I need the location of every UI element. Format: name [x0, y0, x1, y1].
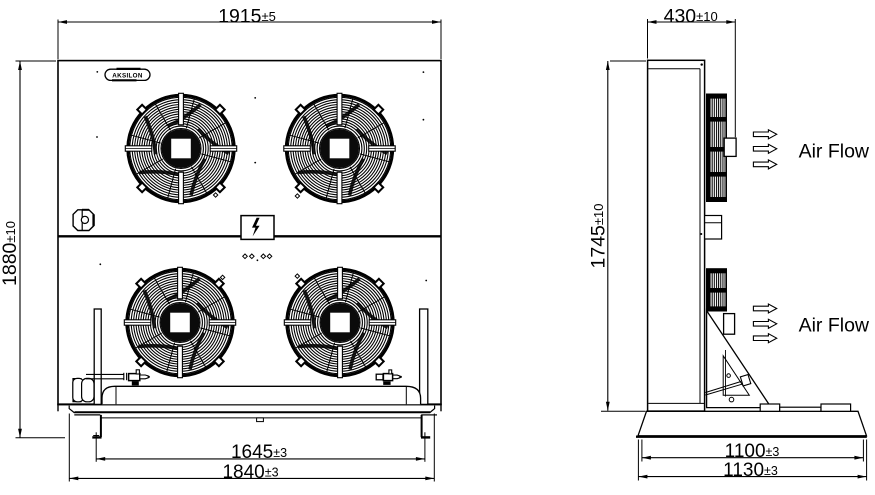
- svg-text:430±10: 430±10: [664, 5, 718, 27]
- svg-text:1915±5: 1915±5: [218, 5, 276, 27]
- svg-text:Air Flow: Air Flow: [799, 314, 870, 336]
- svg-text:1745±10: 1745±10: [587, 204, 609, 269]
- svg-text:Air Flow: Air Flow: [799, 141, 870, 163]
- svg-text:AKSILON: AKSILON: [112, 72, 143, 79]
